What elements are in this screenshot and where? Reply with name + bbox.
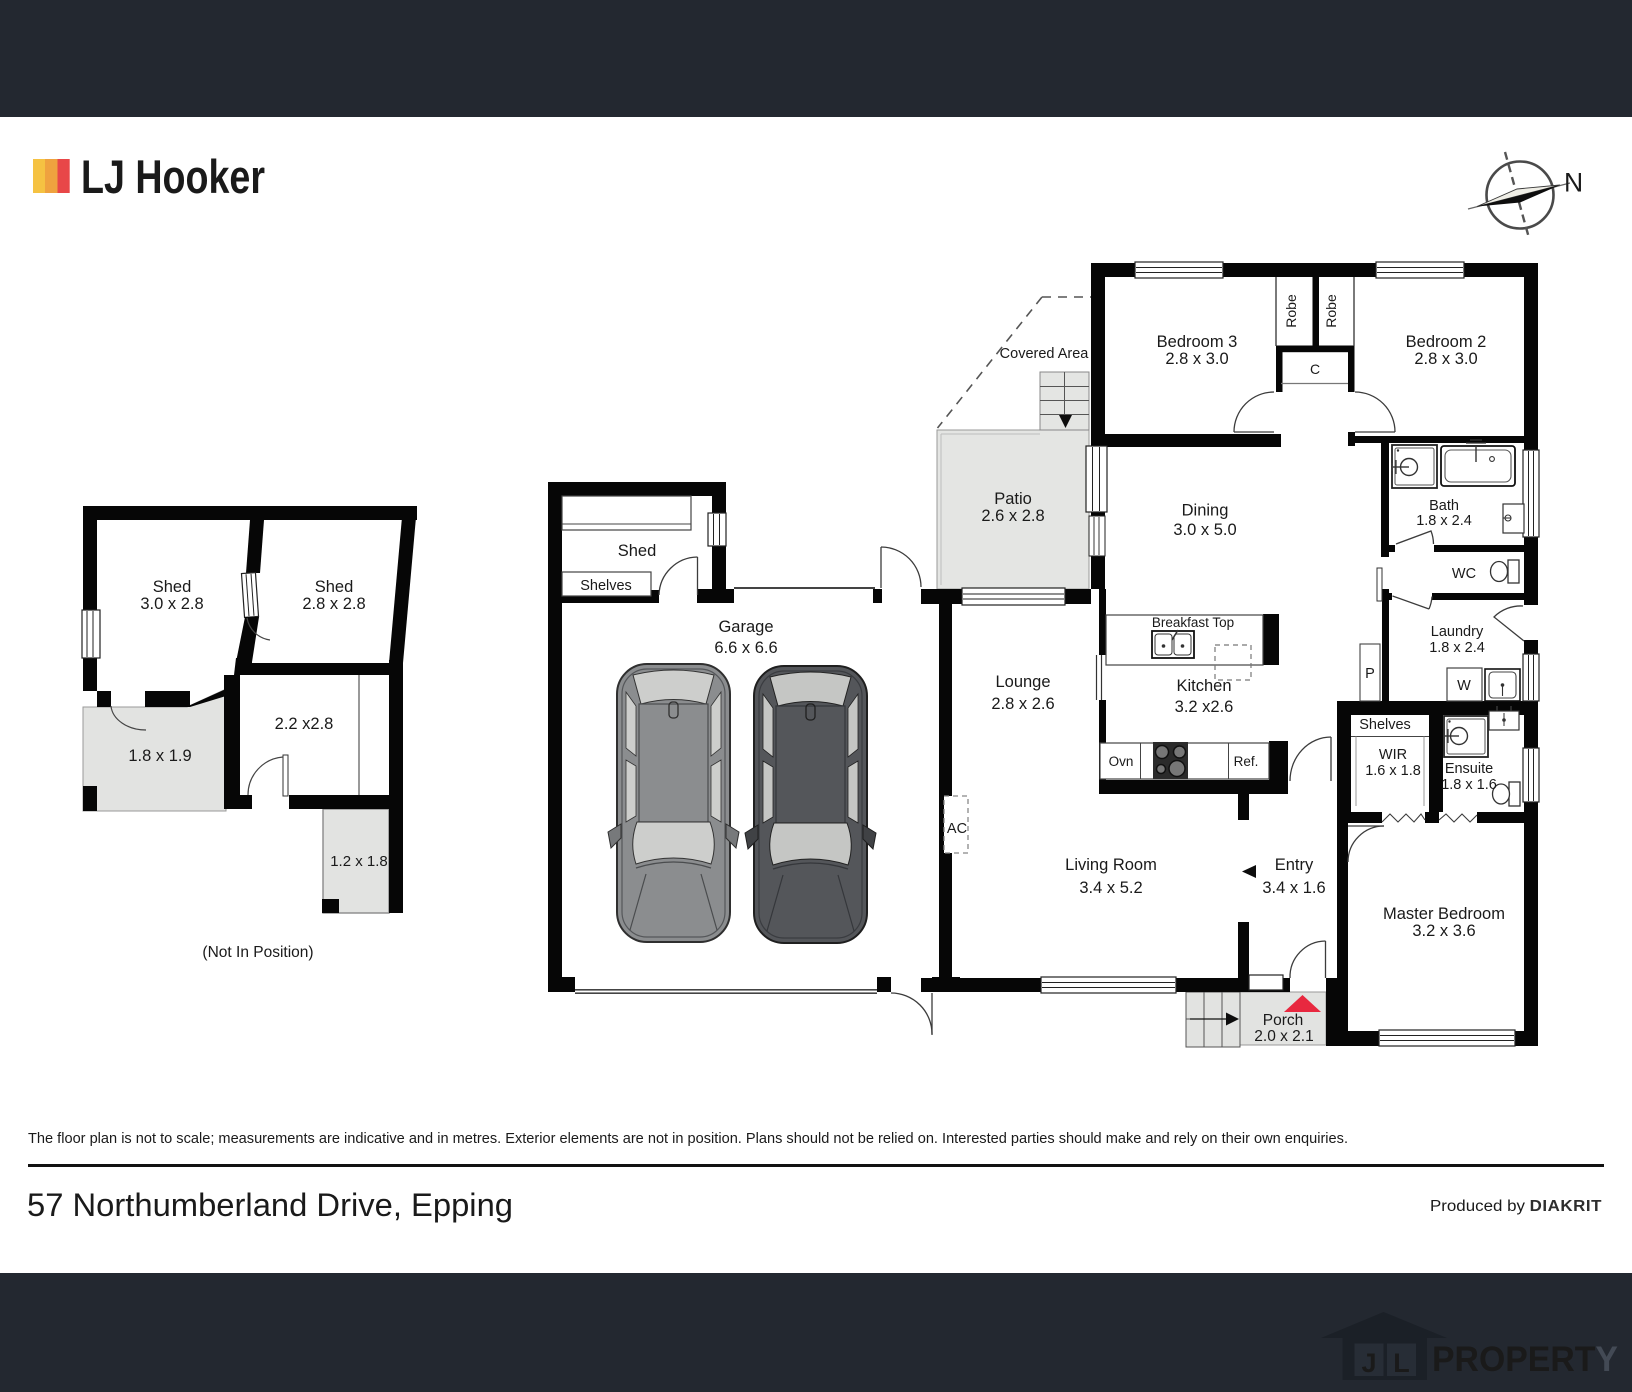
- svg-text:3.0 x 2.8: 3.0 x 2.8: [140, 595, 203, 613]
- svg-text:PROPERTY: PROPERTY: [1432, 1340, 1618, 1379]
- svg-text:2.6 x 2.8: 2.6 x 2.8: [981, 507, 1044, 525]
- svg-text:1.2 x 1.8: 1.2 x 1.8: [330, 853, 388, 870]
- svg-text:Laundry: Laundry: [1431, 624, 1484, 640]
- svg-text:1.8 x 1.9: 1.8 x 1.9: [128, 747, 191, 765]
- svg-text:6.6 x 6.6: 6.6 x 6.6: [714, 639, 777, 657]
- svg-text:Robe: Robe: [1283, 294, 1299, 328]
- svg-text:Shed: Shed: [315, 578, 354, 596]
- svg-text:2.2 x2.8: 2.2 x2.8: [275, 715, 334, 733]
- svg-text:J: J: [1361, 1348, 1376, 1378]
- svg-text:C: C: [1310, 361, 1320, 377]
- svg-text:Bedroom 3: Bedroom 3: [1157, 333, 1238, 351]
- svg-text:Shed: Shed: [153, 578, 192, 596]
- svg-text:57 Northumberland Drive, Eppin: 57 Northumberland Drive, Epping: [27, 1187, 513, 1223]
- svg-text:1.8 x 2.4: 1.8 x 2.4: [1429, 640, 1485, 656]
- svg-text:Produced by DIAKRIT: Produced by DIAKRIT: [1430, 1198, 1602, 1215]
- svg-text:2.0 x 2.1: 2.0 x 2.1: [1254, 1028, 1313, 1045]
- svg-text:Robe: Robe: [1323, 294, 1339, 328]
- svg-text:1.8 x 2.4: 1.8 x 2.4: [1416, 513, 1472, 529]
- svg-text:1.8 x 1.6: 1.8 x 1.6: [1441, 777, 1497, 793]
- svg-text:Garage: Garage: [718, 618, 773, 636]
- svg-text:Bath: Bath: [1429, 498, 1459, 514]
- svg-text:Breakfast Top: Breakfast Top: [1152, 615, 1234, 630]
- svg-text:AC: AC: [947, 821, 967, 837]
- svg-text:Lounge: Lounge: [995, 673, 1050, 691]
- svg-text:Shed: Shed: [618, 542, 657, 560]
- svg-text:3.4 x 5.2: 3.4 x 5.2: [1079, 879, 1142, 897]
- svg-text:Entry: Entry: [1275, 856, 1314, 874]
- svg-text:Ensuite: Ensuite: [1445, 761, 1493, 777]
- svg-text:LJ Hooker: LJ Hooker: [81, 150, 265, 203]
- svg-text:Patio: Patio: [994, 490, 1032, 508]
- svg-text:Kitchen: Kitchen: [1176, 677, 1231, 695]
- svg-text:Ref.: Ref.: [1234, 754, 1259, 769]
- svg-text:2.8 x 2.8: 2.8 x 2.8: [302, 595, 365, 613]
- svg-text:3.2 x2.6: 3.2 x2.6: [1175, 698, 1234, 716]
- svg-text:P: P: [1365, 666, 1375, 682]
- svg-text:2.8 x 2.6: 2.8 x 2.6: [991, 695, 1054, 713]
- svg-text:Ovn: Ovn: [1109, 754, 1134, 769]
- svg-text:Shelves: Shelves: [1359, 717, 1411, 733]
- svg-text:WC: WC: [1452, 566, 1476, 582]
- svg-text:Shelves: Shelves: [580, 578, 632, 594]
- svg-text:2.8 x 3.0: 2.8 x 3.0: [1165, 350, 1228, 368]
- svg-text:Bedroom 2: Bedroom 2: [1406, 333, 1487, 351]
- svg-text:2.8 x 3.0: 2.8 x 3.0: [1414, 350, 1477, 368]
- svg-text:W: W: [1457, 678, 1471, 694]
- svg-text:Porch: Porch: [1263, 1012, 1304, 1029]
- svg-text:Living Room: Living Room: [1065, 856, 1157, 874]
- svg-text:3.2 x 3.6: 3.2 x 3.6: [1412, 922, 1475, 940]
- svg-text:3.0 x 5.0: 3.0 x 5.0: [1173, 521, 1236, 539]
- svg-text:The floor plan is not to scale: The floor plan is not to scale; measurem…: [28, 1131, 1348, 1147]
- svg-text:3.4 x 1.6: 3.4 x 1.6: [1262, 879, 1325, 897]
- svg-text:1.6 x 1.8: 1.6 x 1.8: [1365, 763, 1421, 779]
- svg-text:Master Bedroom: Master Bedroom: [1383, 905, 1505, 923]
- svg-text:WIR: WIR: [1379, 747, 1407, 763]
- svg-text:(Not In Position): (Not In Position): [202, 944, 313, 961]
- svg-text:Covered Area: Covered Area: [1000, 346, 1090, 362]
- svg-text:N: N: [1564, 168, 1583, 198]
- svg-text:L: L: [1393, 1348, 1410, 1378]
- svg-text:Dining: Dining: [1182, 502, 1229, 520]
